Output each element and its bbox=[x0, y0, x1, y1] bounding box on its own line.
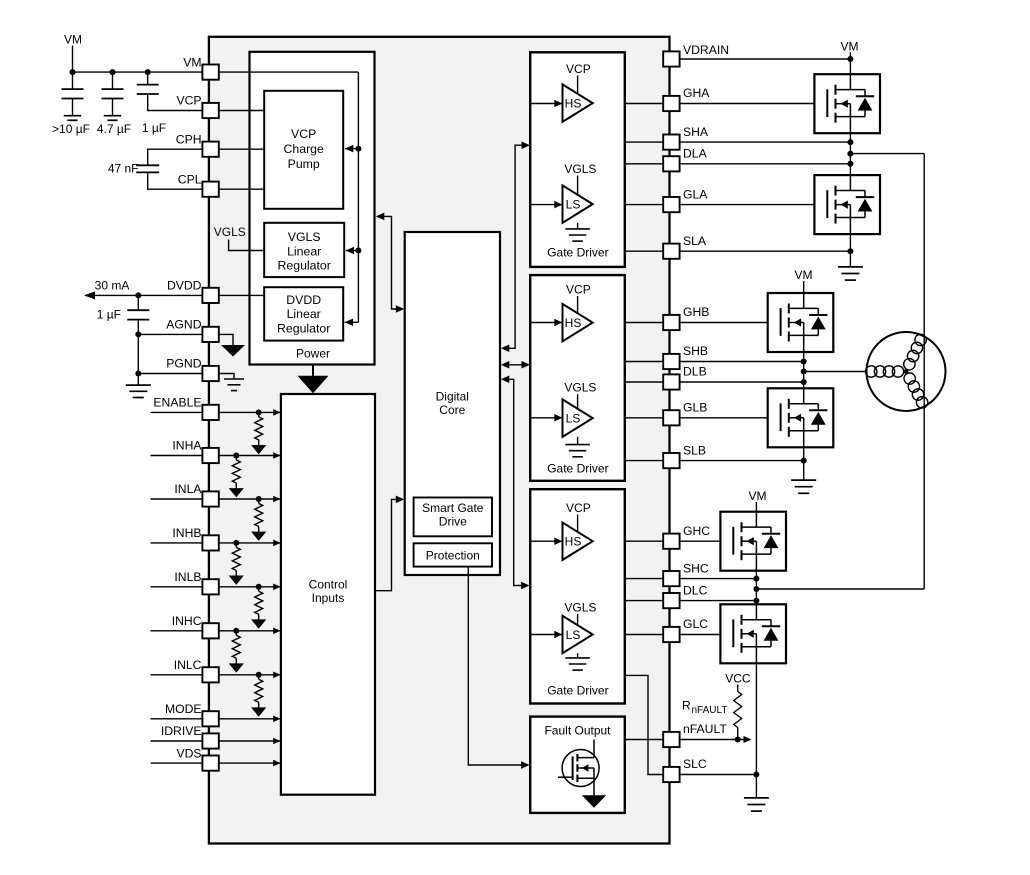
svg-text:Pump: Pump bbox=[288, 157, 320, 171]
svg-text:VGLS: VGLS bbox=[288, 230, 321, 244]
svg-text:LS: LS bbox=[566, 628, 581, 642]
svg-text:Regulator: Regulator bbox=[277, 322, 330, 336]
svg-text:DVDD: DVDD bbox=[167, 279, 202, 293]
svg-text:VCP: VCP bbox=[566, 501, 591, 515]
svg-text:Fault Output: Fault Output bbox=[544, 723, 611, 737]
svg-text:INHB: INHB bbox=[172, 526, 201, 540]
svg-text:CPL: CPL bbox=[178, 172, 202, 186]
svg-text:Gate Driver: Gate Driver bbox=[547, 684, 608, 698]
svg-text:Gate Driver: Gate Driver bbox=[547, 246, 608, 260]
svg-text:SHB: SHB bbox=[683, 344, 708, 358]
svg-text:IDRIVE: IDRIVE bbox=[161, 724, 202, 738]
svg-text:Smart Gate: Smart Gate bbox=[422, 501, 484, 515]
svg-text:R: R bbox=[682, 699, 691, 713]
svg-text:30 mA: 30 mA bbox=[95, 278, 130, 292]
svg-text:SLB: SLB bbox=[683, 443, 706, 457]
svg-text:SHA: SHA bbox=[683, 125, 709, 139]
svg-text:SHC: SHC bbox=[683, 561, 709, 575]
svg-text:Protection: Protection bbox=[426, 549, 480, 563]
svg-text:4.7 µF: 4.7 µF bbox=[97, 122, 131, 136]
svg-text:GHA: GHA bbox=[683, 86, 710, 100]
svg-text:Inputs: Inputs bbox=[312, 591, 345, 605]
svg-text:PGND: PGND bbox=[166, 357, 201, 371]
svg-text:Charge: Charge bbox=[284, 142, 324, 156]
svg-text:nFAULT: nFAULT bbox=[692, 705, 728, 716]
svg-text:CPH: CPH bbox=[176, 132, 202, 146]
svg-text:VM: VM bbox=[795, 268, 813, 282]
svg-text:GLA: GLA bbox=[683, 187, 708, 201]
svg-text:INLA: INLA bbox=[174, 482, 202, 496]
svg-text:Linear: Linear bbox=[287, 307, 321, 321]
svg-text:Gate Driver: Gate Driver bbox=[547, 462, 608, 476]
svg-text:VGLS: VGLS bbox=[564, 162, 596, 176]
svg-text:SLC: SLC bbox=[683, 757, 707, 771]
svg-text:INHA: INHA bbox=[172, 439, 202, 453]
svg-text:MODE: MODE bbox=[165, 702, 202, 716]
svg-text:HS: HS bbox=[565, 535, 582, 549]
svg-text:VM: VM bbox=[183, 55, 201, 69]
svg-text:VM: VM bbox=[749, 489, 767, 503]
svg-text:HS: HS bbox=[565, 96, 582, 110]
svg-text:DLA: DLA bbox=[683, 147, 708, 161]
svg-text:1 µF: 1 µF bbox=[142, 121, 166, 135]
svg-text:ENABLE: ENABLE bbox=[153, 396, 201, 410]
svg-text:GHB: GHB bbox=[683, 305, 709, 319]
svg-text:Drive: Drive bbox=[439, 515, 467, 529]
svg-text:LS: LS bbox=[566, 411, 581, 425]
svg-text:DLB: DLB bbox=[683, 365, 707, 379]
svg-text:GHC: GHC bbox=[683, 524, 710, 538]
svg-text:Control: Control bbox=[309, 578, 348, 592]
svg-text:GLC: GLC bbox=[683, 617, 708, 631]
svg-text:VCC: VCC bbox=[725, 672, 751, 686]
svg-text:1 µF: 1 µF bbox=[97, 307, 121, 321]
svg-text:LS: LS bbox=[566, 197, 581, 211]
svg-text:VM: VM bbox=[64, 32, 82, 46]
svg-text:VDRAIN: VDRAIN bbox=[683, 43, 729, 57]
svg-text:DLC: DLC bbox=[683, 583, 708, 597]
svg-text:VCP: VCP bbox=[176, 94, 201, 108]
svg-text:AGND: AGND bbox=[166, 318, 201, 332]
svg-text:VGLS: VGLS bbox=[564, 601, 596, 615]
svg-text:nFAULT: nFAULT bbox=[683, 722, 727, 736]
svg-text:VCP: VCP bbox=[566, 62, 591, 76]
svg-text:DVDD: DVDD bbox=[286, 293, 321, 307]
svg-text:GLB: GLB bbox=[683, 401, 707, 415]
svg-text:Regulator: Regulator bbox=[278, 259, 331, 273]
svg-text:INHC: INHC bbox=[172, 614, 202, 628]
svg-text:VGLS: VGLS bbox=[214, 225, 246, 239]
svg-text:Digital: Digital bbox=[436, 390, 469, 404]
svg-text:>10 µF: >10 µF bbox=[52, 122, 90, 136]
svg-text:VCP: VCP bbox=[291, 127, 316, 141]
svg-text:INLB: INLB bbox=[174, 570, 201, 584]
svg-text:Core: Core bbox=[439, 403, 465, 417]
svg-text:VDS: VDS bbox=[176, 746, 201, 760]
svg-text:47 nF: 47 nF bbox=[108, 162, 139, 176]
svg-text:Linear: Linear bbox=[287, 244, 321, 258]
svg-text:SLA: SLA bbox=[683, 234, 707, 248]
svg-text:VCP: VCP bbox=[566, 283, 591, 297]
svg-text:VM: VM bbox=[841, 39, 859, 53]
svg-text:VGLS: VGLS bbox=[564, 381, 596, 395]
svg-text:INLC: INLC bbox=[174, 658, 202, 672]
svg-text:Power: Power bbox=[296, 346, 330, 360]
svg-text:HS: HS bbox=[565, 316, 582, 330]
